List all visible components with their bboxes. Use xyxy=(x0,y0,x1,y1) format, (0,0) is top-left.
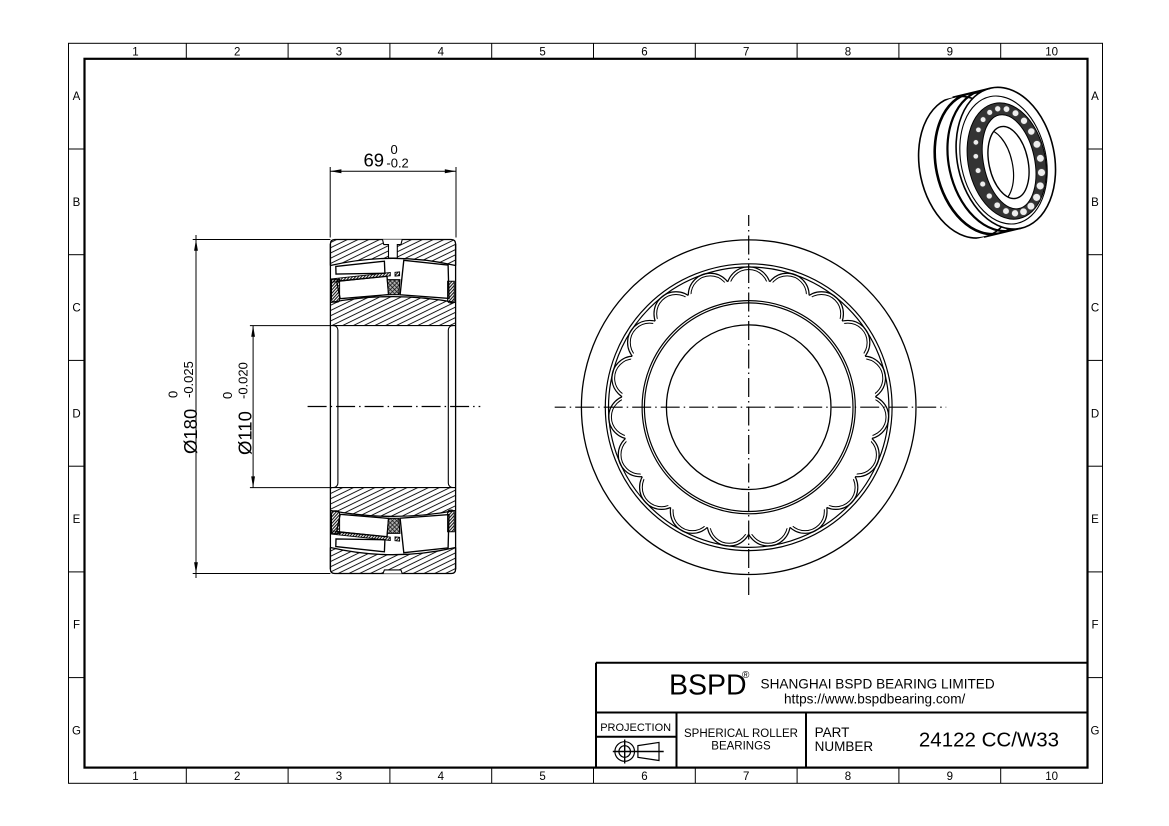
svg-text:2: 2 xyxy=(234,771,240,783)
svg-text:8: 8 xyxy=(845,771,851,783)
svg-text:69: 69 xyxy=(364,150,385,171)
svg-text:Ø180: Ø180 xyxy=(180,409,201,454)
svg-text:®: ® xyxy=(742,670,750,681)
svg-text:-0.025: -0.025 xyxy=(181,361,196,398)
svg-text:6: 6 xyxy=(641,47,647,59)
svg-text:G: G xyxy=(72,725,81,737)
svg-text:4: 4 xyxy=(438,771,445,783)
svg-text:https://www.bspdbearing.com/: https://www.bspdbearing.com/ xyxy=(784,692,966,707)
svg-text:-0.2: -0.2 xyxy=(386,155,408,170)
svg-text:5: 5 xyxy=(539,771,545,783)
svg-text:F: F xyxy=(1091,620,1098,632)
svg-text:BSPD: BSPD xyxy=(669,670,747,702)
svg-text:C: C xyxy=(72,303,80,315)
svg-text:10: 10 xyxy=(1045,771,1058,783)
svg-text:9: 9 xyxy=(947,771,953,783)
svg-text:A: A xyxy=(73,91,81,103)
svg-text:SPHERICAL ROLLER: SPHERICAL ROLLER xyxy=(684,728,798,740)
svg-text:E: E xyxy=(73,514,81,526)
svg-text:A: A xyxy=(1091,91,1099,103)
svg-text:C: C xyxy=(1091,303,1099,315)
svg-text:BEARINGS: BEARINGS xyxy=(711,741,771,753)
svg-text:0: 0 xyxy=(220,392,235,399)
svg-text:B: B xyxy=(1091,197,1099,209)
svg-text:7: 7 xyxy=(743,47,749,59)
svg-text:3: 3 xyxy=(336,47,342,59)
svg-text:SHANGHAI BSPD BEARING LIMITED: SHANGHAI BSPD BEARING LIMITED xyxy=(761,677,995,692)
svg-text:10: 10 xyxy=(1045,47,1058,59)
svg-text:E: E xyxy=(1091,514,1099,526)
svg-text:Ø110: Ø110 xyxy=(234,411,255,455)
svg-text:6: 6 xyxy=(641,771,647,783)
svg-text:PROJECTION: PROJECTION xyxy=(600,722,671,734)
svg-text:9: 9 xyxy=(947,47,953,59)
svg-text:5: 5 xyxy=(539,47,545,59)
svg-text:1: 1 xyxy=(132,771,138,783)
svg-text:4: 4 xyxy=(438,47,445,59)
svg-text:2: 2 xyxy=(234,47,240,59)
svg-text:7: 7 xyxy=(743,771,749,783)
svg-text:8: 8 xyxy=(845,47,851,59)
svg-text:G: G xyxy=(1091,725,1100,737)
svg-text:NUMBER: NUMBER xyxy=(815,739,874,754)
svg-text:F: F xyxy=(73,620,80,632)
svg-text:24122 CC/W33: 24122 CC/W33 xyxy=(919,729,1059,752)
svg-text:D: D xyxy=(72,408,80,420)
svg-text:1: 1 xyxy=(132,47,138,59)
svg-text:-0.020: -0.020 xyxy=(236,362,251,399)
svg-text:B: B xyxy=(73,197,81,209)
svg-text:0: 0 xyxy=(166,391,181,398)
svg-text:D: D xyxy=(1091,408,1099,420)
svg-text:3: 3 xyxy=(336,771,342,783)
svg-text:PART: PART xyxy=(815,725,850,740)
